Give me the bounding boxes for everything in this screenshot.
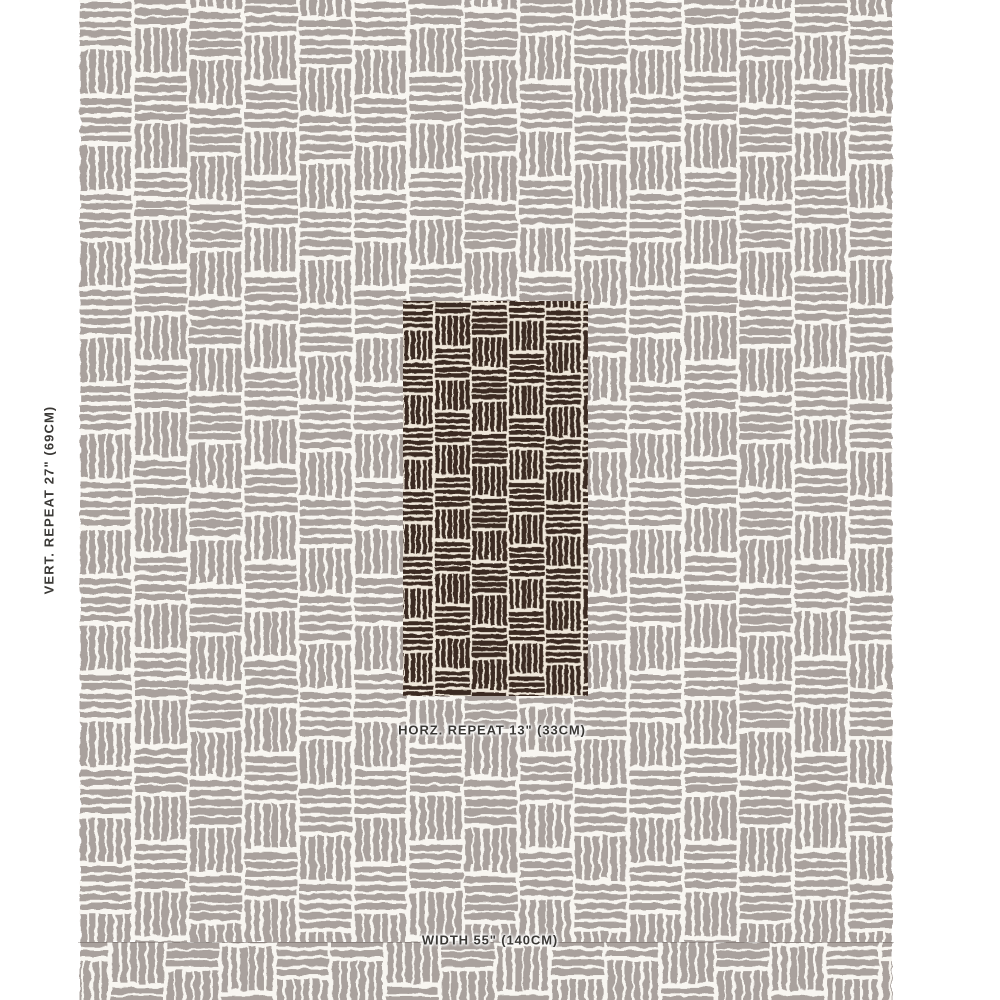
repeat-swatch	[403, 301, 588, 696]
fabric-pattern-area	[78, 0, 894, 1000]
fabric-spec-page: VERT. REPEAT 27" (69CM) HORZ. REPEAT 13"…	[0, 0, 1000, 1000]
fabric-strip-lower	[78, 942, 894, 1000]
width-label: WIDTH 55" (140CM)	[422, 933, 558, 948]
vertical-repeat-label: VERT. REPEAT 27" (69CM)	[42, 406, 57, 595]
horizontal-repeat-label: HORZ. REPEAT 13" (33CM)	[398, 723, 586, 738]
